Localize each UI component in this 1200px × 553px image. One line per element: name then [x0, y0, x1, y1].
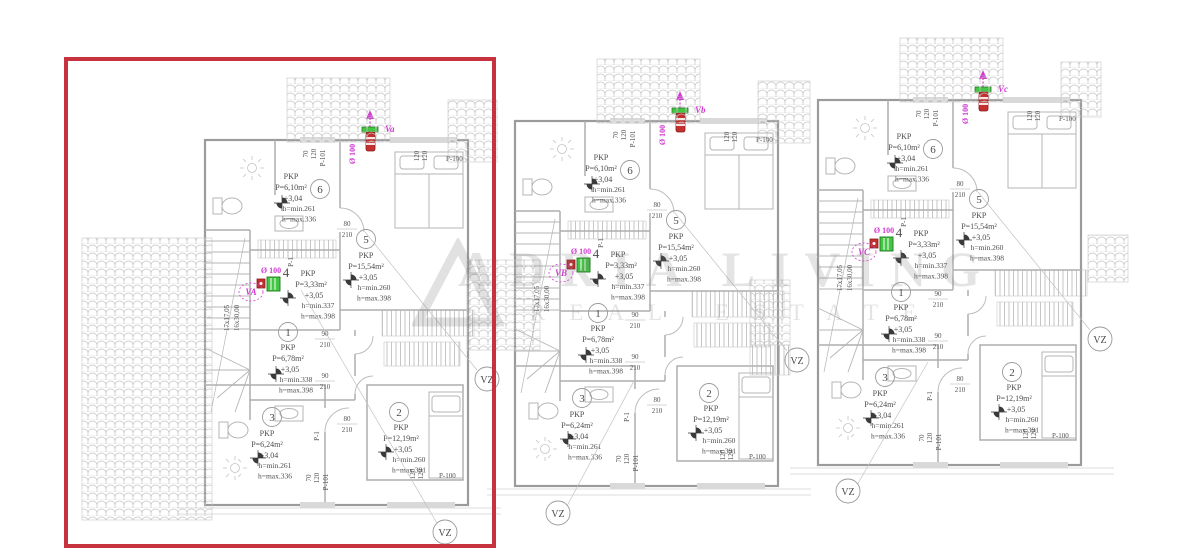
vent-label-room: VC: [858, 247, 871, 257]
floorplan-canvas[interactable]: 6 PKP P=6,10m² +3,04 h=min.261 h=max.336…: [0, 0, 1200, 553]
vent-label-top: Vc: [998, 84, 1008, 94]
vent-label-room: VB: [555, 268, 567, 278]
svg-text:VZ: VZ: [841, 487, 854, 498]
roof-tile-hatch: [1061, 62, 1101, 117]
roof-tile-hatch: [758, 81, 810, 143]
roof-tile-hatch: [900, 38, 1003, 102]
pergola-hatch: [750, 345, 790, 375]
roof-tile-hatch: [597, 59, 700, 123]
svg-text:VZ: VZ: [551, 509, 564, 520]
vent-label-top: Vb: [695, 105, 706, 115]
roof-tile-hatch: [1088, 235, 1128, 282]
roof-tile-hatch: [750, 280, 790, 345]
floorplan-right[interactable]: [790, 70, 1114, 474]
selection-highlight-frame[interactable]: [64, 57, 496, 548]
